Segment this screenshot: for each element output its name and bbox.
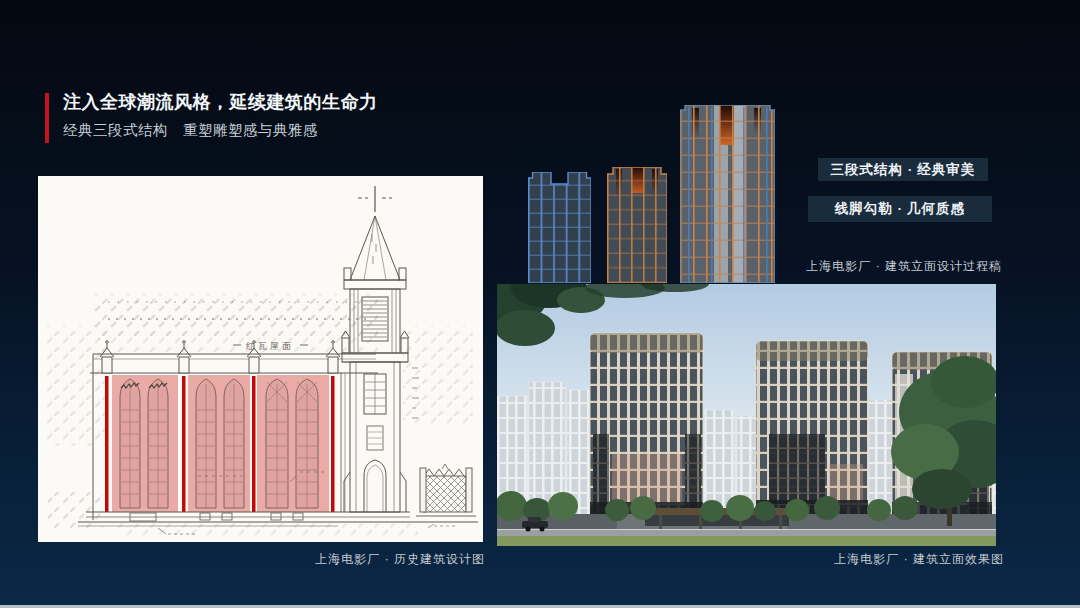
slide-background: 注入全球潮流风格，延续建筑的生命力 经典三段式结构 重塑雕塑感与典雅感 — [0, 0, 1080, 608]
page-subtitle: 经典三段式结构 重塑雕塑感与典雅感 — [63, 121, 318, 140]
process-caption: 上海电影厂 · 建筑立面设计过程稿 — [806, 258, 1002, 275]
historic-drawing-panel: 红瓦屋面 — [38, 176, 483, 542]
render-photo — [497, 284, 996, 546]
main-tower-1 — [590, 333, 703, 524]
badge-moulding-geometry: 线脚勾勒 · 几何质感 — [808, 196, 992, 222]
process-building-small — [528, 172, 591, 283]
lawn — [497, 536, 996, 546]
header-accent-bar — [45, 93, 49, 143]
badge-three-section-structure: 三段式结构 · 经典审美 — [818, 158, 988, 181]
main-tower-2 — [756, 341, 868, 521]
historic-drawing: 红瓦屋面 — [38, 176, 483, 542]
historic-caption: 上海电影厂 · 历史建筑设计图 — [315, 551, 485, 568]
page-title: 注入全球潮流风格，延续建筑的生命力 — [63, 90, 378, 114]
process-building-large — [680, 105, 775, 283]
process-building-middle — [607, 167, 667, 283]
render-photo-panel — [497, 284, 996, 546]
render-caption: 上海电影厂 · 建筑立面效果图 — [834, 551, 1004, 568]
